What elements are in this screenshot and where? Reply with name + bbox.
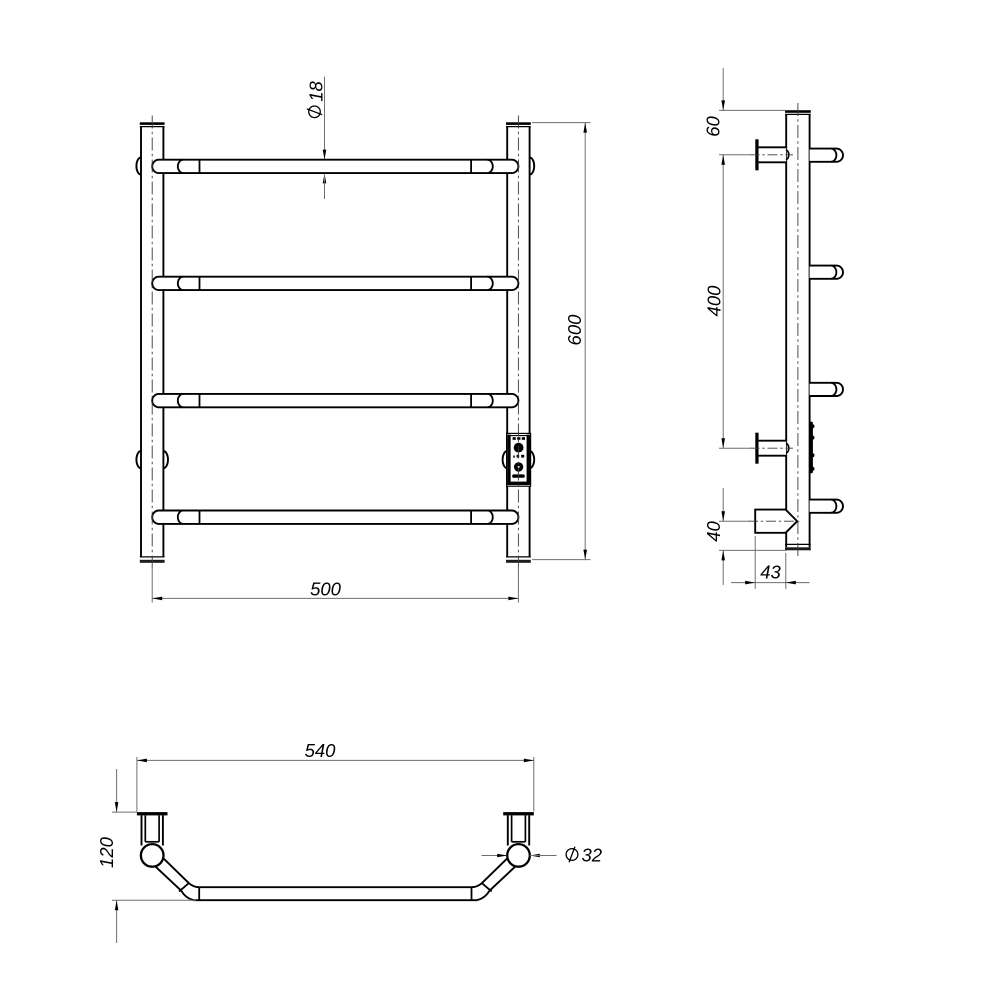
svg-text:60: 60 [703, 116, 724, 137]
svg-text:500: 500 [310, 578, 342, 599]
svg-text:43: 43 [760, 561, 781, 582]
svg-text:120: 120 [96, 836, 117, 868]
svg-text:600: 600 [564, 314, 585, 346]
svg-text:540: 540 [305, 740, 337, 761]
svg-text:32: 32 [582, 845, 603, 866]
svg-text:18: 18 [306, 81, 327, 102]
svg-text:40: 40 [703, 521, 724, 542]
svg-text:400: 400 [704, 285, 725, 317]
